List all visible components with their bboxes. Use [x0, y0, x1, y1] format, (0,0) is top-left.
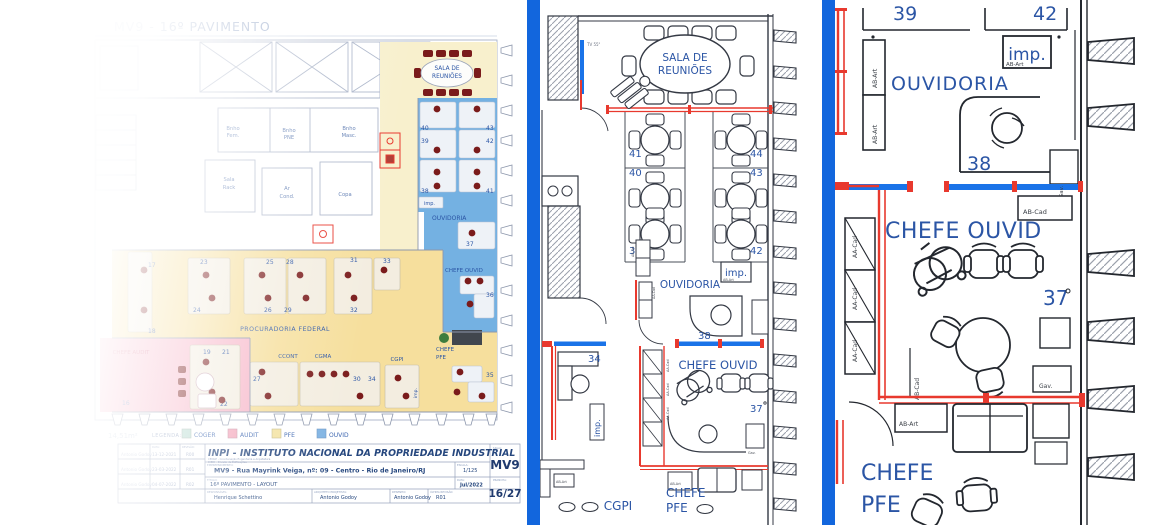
svg-text:31: 31	[350, 257, 358, 264]
svg-text:Henrique Schettino: Henrique Schettino	[214, 495, 262, 501]
svg-text:R01: R01	[436, 495, 446, 501]
procuradoria-label: PROCURADORIA FEDERAL	[240, 326, 330, 333]
bottom-band: AB-Art CHEFE PFE CGPI AB-Art	[540, 460, 768, 515]
blue-divider-1	[527, 0, 540, 525]
svg-text:DIEDI - Divisão de Edificações: DIEDI - Divisão de Edificações	[208, 460, 247, 464]
svg-text:39: 39	[893, 3, 917, 25]
chefe-pfe-room: AB-Art CHEFE PFE	[837, 393, 1085, 525]
ouvidoria-label: OUVIDORIA	[891, 73, 1009, 95]
svg-text:04-07-2022: 04-07-2022	[152, 482, 177, 487]
svg-text:AB-Art: AB-Art	[872, 124, 879, 144]
svg-text:37: 37	[1043, 286, 1068, 310]
svg-text:AB-Cad: AB-Cad	[1023, 208, 1047, 216]
wheelchair-icon	[906, 236, 968, 297]
svg-text:R01: R01	[186, 467, 195, 472]
svg-text:Sala: Sala	[223, 177, 234, 183]
plant	[439, 333, 449, 343]
svg-text:Fem.: Fem.	[227, 133, 240, 139]
svg-text:44: 44	[750, 149, 763, 160]
svg-text:Antonio Godoy: Antonio Godoy	[320, 495, 357, 501]
svg-text:36: 36	[486, 292, 494, 299]
legend-swatch-pfe	[272, 429, 281, 438]
svg-text:16: 16	[122, 400, 130, 407]
left-service	[542, 176, 606, 324]
svg-text:AB-Art: AB-Art	[556, 480, 568, 484]
svg-text:CHEFE: CHEFE	[666, 486, 705, 500]
svg-text:40: 40	[421, 125, 429, 132]
svg-text:AA-Cad: AA-Cad	[852, 288, 859, 310]
blue-divider-2	[822, 0, 835, 525]
wheelchair-icon	[672, 367, 715, 406]
svg-text:CHEFE AUDIT: CHEFE AUDIT	[113, 350, 150, 356]
svg-text:DATA:: DATA:	[152, 445, 160, 449]
svg-text:17: 17	[148, 262, 156, 269]
chefe-pfe-label-2: PFE	[861, 493, 901, 518]
project-address: MV9 - Rua Mayrink Veiga, nº: 09 - Centro…	[214, 468, 425, 475]
ouvidoria-furniture: AB-Art AB-Art imp. AB-Art OUVIDORIA 38	[863, 36, 1078, 184]
title-block: DATA: REVISÃO: EMPREENDIMENTO: TÍTULO: R…	[118, 444, 522, 503]
svg-text:Jul/2022: Jul/2022	[459, 483, 483, 489]
svg-text:AA-Cad: AA-Cad	[852, 340, 859, 362]
svg-text:43: 43	[486, 125, 494, 132]
svg-text:37: 37	[466, 241, 474, 248]
svg-text:DESENHO:: DESENHO:	[392, 490, 406, 494]
svg-text:Antonio Godoy: Antonio Godoy	[121, 452, 152, 457]
svg-text:PRANCHA:: PRANCHA:	[493, 478, 507, 482]
svg-text:AA-Cad: AA-Cad	[652, 287, 656, 299]
red-wall-left	[835, 8, 847, 135]
svg-text:AB-Art: AB-Art	[723, 278, 735, 282]
svg-text:CHEFE: CHEFE	[436, 347, 455, 353]
svg-text:Bnho: Bnho	[226, 126, 239, 132]
legend-swatch-coger	[182, 429, 191, 438]
svg-text:PNE: PNE	[284, 135, 294, 141]
imp-vertical-label: imp.	[413, 388, 419, 398]
svg-text:13-12-2021: 13-12-2021	[152, 452, 177, 457]
svg-text:35: 35	[486, 372, 494, 379]
svg-text:imp.: imp.	[593, 419, 602, 437]
guest-chairs	[964, 244, 1043, 279]
svg-text:26: 26	[264, 307, 272, 314]
legend-swatch-audit	[228, 429, 237, 438]
svg-text:38: 38	[421, 188, 429, 195]
svg-text:REVISÃO:: REVISÃO:	[182, 444, 195, 449]
area-note: 14,51m²	[108, 432, 138, 440]
svg-text:32: 32	[350, 307, 358, 314]
svg-text:Masc.: Masc.	[342, 133, 357, 139]
svg-text:27: 27	[253, 376, 261, 383]
sala-label-2: REUNIÕES	[432, 73, 462, 80]
svg-text:AB-Art: AB-Art	[872, 68, 879, 88]
svg-text:CGPI: CGPI	[604, 499, 632, 513]
svg-text:34: 34	[588, 354, 601, 365]
svg-text:19: 19	[203, 349, 211, 356]
svg-text:23: 23	[200, 259, 208, 266]
svg-text:Bnho: Bnho	[282, 128, 295, 134]
svg-text:21: 21	[222, 349, 230, 356]
svg-text:Antonio Godoy: Antonio Godoy	[121, 482, 152, 487]
svg-text:RESPONSÁVEL:: RESPONSÁVEL:	[207, 489, 227, 494]
svg-text:38: 38	[967, 153, 991, 175]
exterior-wall	[1075, 0, 1134, 525]
svg-text:AA-Cad: AA-Cad	[852, 236, 859, 258]
svg-text:Antonio Godoy: Antonio Godoy	[394, 495, 431, 501]
cabinet-column: AA-Cad AA-Cad AA-Cad	[640, 346, 670, 466]
svg-text:CHEFE OUVID: CHEFE OUVID	[678, 358, 757, 372]
svg-text:ARQUITETO PROJETISTA:: ARQUITETO PROJETISTA:	[314, 490, 347, 494]
svg-text:23-03-2022: 23-03-2022	[152, 467, 177, 472]
svg-text:30: 30	[353, 376, 361, 383]
svg-text:OUVIDORIA: OUVIDORIA	[432, 215, 467, 222]
svg-text:Bnho: Bnho	[342, 126, 355, 132]
gav-box: Gav.	[1033, 366, 1071, 392]
guest-chairs	[717, 374, 773, 392]
three-panel-floorplan-strip: MV9 - 16º PAVIMENTO	[0, 0, 1150, 525]
sheet-title: 16º PAVIMENTO - LAYOUT	[210, 481, 278, 488]
sala-label-1: SALA DE	[434, 66, 459, 72]
svg-text:Ar: Ar	[284, 186, 291, 192]
tv-label: TV 55"	[586, 42, 601, 47]
svg-text:PFE: PFE	[666, 501, 688, 515]
svg-text:OUVID: OUVID	[329, 432, 349, 439]
svg-text:33: 33	[383, 258, 391, 265]
svg-text:43: 43	[750, 168, 763, 179]
svg-text:AB-Art: AB-Art	[1006, 62, 1024, 68]
svg-text:29: 29	[284, 307, 292, 314]
legend: 14,51m² LEGENDA: COGER AUDIT PFE OUVID	[108, 429, 349, 440]
svg-text:OUVIDORIA: OUVIDORIA	[660, 279, 721, 291]
chefe-ouvid-label: CHEFE OUVID	[885, 219, 1042, 244]
svg-text:34: 34	[368, 376, 376, 383]
svg-text:SALA DE: SALA DE	[662, 52, 707, 64]
svg-text:Gav.: Gav.	[1039, 383, 1052, 390]
svg-text:REUNIÕES: REUNIÕES	[658, 64, 712, 77]
svg-text:ESCALA:: ESCALA:	[457, 463, 468, 467]
chefe-ouvid-room: CHEFE OUVID 37 Gav.	[668, 358, 773, 455]
svg-text:R00: R00	[186, 452, 195, 457]
svg-text:1/125: 1/125	[463, 468, 477, 474]
service-room-labels: BnhoFem. BnhoPNE BnhoMasc. SalaRack ArCo…	[223, 126, 357, 200]
svg-text:AA-Cad: AA-Cad	[666, 360, 670, 372]
legend-label: LEGENDA:	[152, 433, 182, 439]
sheet-number: 16/27	[488, 488, 521, 500]
svg-text:CCONT: CCONT	[278, 354, 298, 360]
sheet-header: MV9 - 16º PAVIMENTO	[114, 19, 271, 34]
svg-text:38: 38	[698, 331, 711, 342]
svg-text:R02: R02	[186, 482, 195, 487]
panel-detail-crop: 39 42 AB-Art AB-Art imp. AB-Art OUVIDORI…	[835, 0, 1150, 525]
svg-text:41: 41	[629, 149, 642, 160]
svg-text:COGER: COGER	[194, 432, 216, 439]
svg-text:42: 42	[486, 138, 494, 145]
svg-text:42: 42	[750, 246, 763, 257]
svg-text:ÚLTIMA REVISÃO:: ÚLTIMA REVISÃO:	[430, 489, 453, 494]
svg-text:Antonio Godoy: Antonio Godoy	[121, 467, 152, 472]
legend-swatch-ouvid	[317, 429, 326, 438]
svg-text:AUDIT: AUDIT	[240, 432, 259, 439]
svg-text:18: 18	[148, 328, 156, 335]
svg-text:25: 25	[266, 259, 274, 266]
svg-text:PFE: PFE	[284, 432, 295, 439]
svg-text:AB-Art: AB-Art	[631, 246, 635, 257]
full-floorplan-drawing: MV9 - 16º PAVIMENTO	[0, 0, 527, 525]
svg-text:24: 24	[193, 307, 201, 314]
svg-text:37: 37	[750, 404, 763, 415]
svg-text:Rack: Rack	[223, 185, 236, 191]
top-desk-edges: 39 42	[863, 3, 1067, 39]
svg-text:imp.: imp.	[424, 201, 435, 207]
svg-text:41: 41	[486, 188, 494, 195]
exterior-wall	[768, 14, 796, 525]
chefe-pfe-label-1: CHEFE	[861, 461, 933, 486]
svg-text:28: 28	[286, 259, 294, 266]
svg-text:Gav.: Gav.	[748, 451, 756, 455]
svg-text:CGMA: CGMA	[315, 354, 332, 360]
svg-text:AA-Cad: AA-Cad	[666, 384, 670, 396]
detail-crop-drawing: 39 42 AB-Art AB-Art imp. AB-Art OUVIDORI…	[835, 0, 1150, 525]
svg-text:DATA:: DATA:	[457, 478, 465, 482]
svg-text:PFE: PFE	[436, 355, 446, 361]
svg-text:Copa: Copa	[338, 192, 351, 198]
panel-full-floorplan: MV9 - 16º PAVIMENTO	[0, 0, 527, 525]
svg-text:39: 39	[421, 138, 429, 145]
svg-text:42: 42	[1033, 3, 1057, 25]
svg-text:Cond.: Cond.	[279, 194, 294, 200]
svg-text:40: 40	[629, 168, 642, 179]
svg-text:CGPI: CGPI	[390, 357, 403, 363]
svg-text:AB-Art: AB-Art	[899, 421, 919, 428]
zoom-crop-drawing: TV 55" SALA DE REUNIÕES	[540, 0, 822, 525]
panel-zoom-crop: TV 55" SALA DE REUNIÕES	[540, 0, 822, 525]
room-34: 34 imp.	[552, 346, 604, 440]
glass-partition	[542, 339, 764, 348]
sala-de-reunioes-room: SALA DE REUNIÕES	[610, 26, 754, 112]
sheet-code: MV9	[490, 458, 520, 472]
svg-text:CHEFE OUVID: CHEFE OUVID	[445, 268, 483, 274]
